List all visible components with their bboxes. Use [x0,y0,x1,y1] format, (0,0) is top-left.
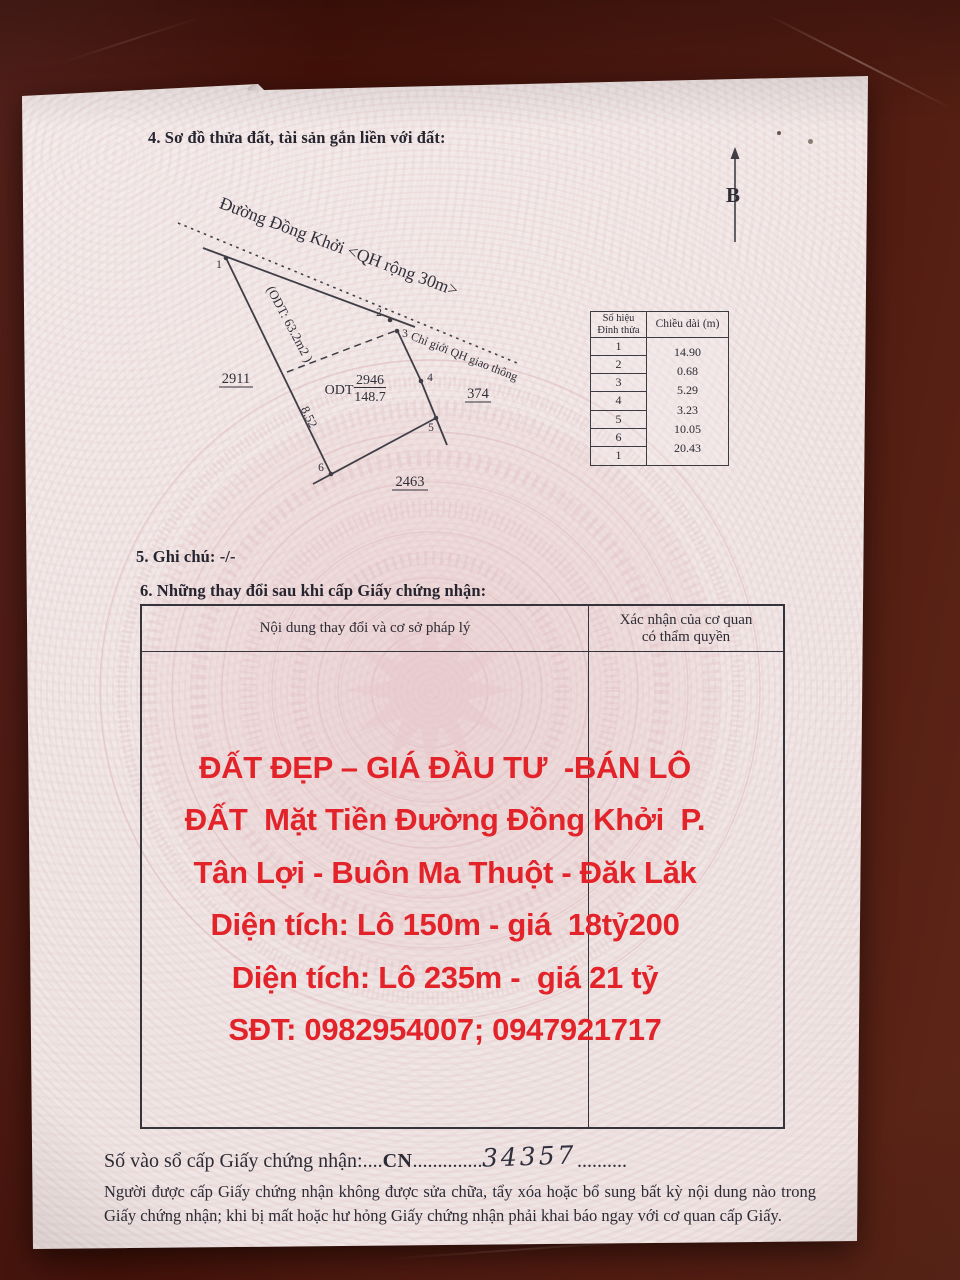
vertex-length-table: Số hiệu Đỉnh thửa Chiều dài (m) 1 2 3 4 … [590,311,729,466]
section5-title: 5. Ghi chú: -/- [136,547,236,567]
north-arrow-head-icon [731,147,740,159]
ad-text-overlay: ĐẤT ĐẸP – GIÁ ĐẦU TƯ -BÁN LÔ ĐẤT Mặt Tiề… [143,742,747,1056]
table-row: 5 [591,411,646,429]
ad-line-4: Diện tích: Lô 150m - giá 18tỷ200 [143,899,747,951]
changes-col2-header: Xác nhận của cơ quan có thẩm quyền [588,606,783,652]
ad-line-3: Tân Lợi - Buôn Ma Thuột - Đăk Lăk [143,847,747,899]
dotted-leader: .... [363,1150,383,1172]
registry-code: CN [383,1150,413,1172]
changes-col1-header: Nội dung thay đổi và cơ sở pháp lý [142,606,588,652]
table-row: 1 [591,338,646,356]
adjacent-parcel-left: 2911 [222,371,250,387]
north-label: B [726,183,740,207]
vertex-label-3: 3 [402,328,408,340]
paper-speck [808,139,813,144]
section4-title: 4. Sơ đồ thửa đất, tài sản gắn liền với … [148,128,446,148]
vertex-label-6: 6 [318,462,324,474]
side-length-label: 8.52 [298,404,320,430]
vertex-label-1: 1 [216,259,222,271]
vertex-table-col2-header: Chiều dài (m) [646,312,728,338]
certificate-page: B Đường Đồng Khởi <QH rộng 30m> Chỉ giới… [0,0,960,1280]
paper-sheet: B Đường Đồng Khởi <QH rộng 30m> Chỉ giới… [0,0,960,1280]
registry-label: Số vào sổ cấp Giấy chứng nhận: [104,1150,363,1172]
handwritten-registry-number: 34357 [482,1140,577,1172]
parcel-area: 148.7 [354,390,386,405]
dotted-leader: .......... [577,1150,627,1172]
ad-line-5: Diện tích: Lô 235m - giá 21 tỷ [143,952,747,1004]
adjacent-parcel-right: 374 [467,386,490,402]
vertex-label-2: 2 [376,307,382,319]
section6-title: 6. Những thay đổi sau khi cấp Giấy chứng… [140,581,486,601]
road-name-label: Đường Đồng Khởi <QH rộng 30m> [217,193,461,301]
ad-line-1: ĐẤT ĐẸP – GIÁ ĐẦU TƯ -BÁN LÔ [143,742,747,794]
vertex-label-4: 4 [427,372,433,384]
table-row: 2 [591,356,646,374]
vertex-label-5: 5 [428,422,434,434]
planning-boundary-label: Chỉ giới QH giao thông [409,329,520,384]
table-row: 1 [591,447,646,465]
adjacent-parcel-bottom: 2463 [396,474,425,490]
land-use-code: ODT [325,383,354,398]
parcel-number: 2946 [356,373,384,388]
vertex-table-col1-header: Số hiệu Đỉnh thửa [591,312,646,338]
footer-warning-note: Người được cấp Giấy chứng nhận không đượ… [104,1180,816,1228]
table-row: 4 [591,392,646,410]
table-row: 6 [591,429,646,447]
edge-lengths-column: 14.90 0.68 5.29 3.23 10.05 20.43 [646,338,728,465]
ad-line-6: SĐT: 0982954007; 0947921717 [143,1004,747,1056]
table-row: 3 [591,374,646,392]
dotted-leader: .............. [412,1150,482,1172]
ad-line-2: ĐẤT Mặt Tiền Đường Đồng Khởi P. [143,794,747,846]
registry-number-line: Số vào sổ cấp Giấy chứng nhận:....CN....… [104,1144,627,1173]
photo-of-land-certificate: B Đường Đồng Khởi <QH rộng 30m> Chỉ giới… [0,0,960,1280]
paper-speck [777,131,781,135]
